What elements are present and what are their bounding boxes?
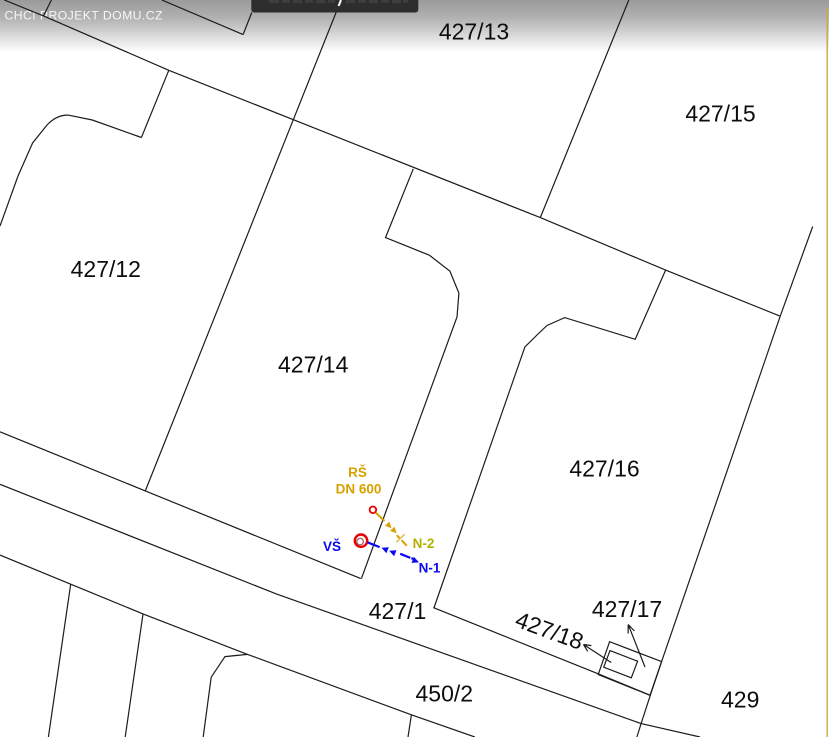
svg-text:427/1: 427/1 [369, 598, 427, 624]
svg-text:VŠ: VŠ [323, 539, 341, 554]
svg-text:427/12: 427/12 [71, 256, 141, 282]
svg-text:DN 600: DN 600 [336, 482, 382, 497]
svg-text:CHCI PROJEKT DOMU.CZ: CHCI PROJEKT DOMU.CZ [5, 9, 164, 23]
svg-text:RŠ: RŠ [348, 465, 367, 480]
svg-text:427/17: 427/17 [592, 596, 662, 622]
svg-text:427/13: 427/13 [439, 19, 509, 45]
svg-text:429: 429 [721, 687, 759, 713]
svg-text:N-1: N-1 [419, 561, 441, 576]
svg-text:N-2: N-2 [413, 536, 435, 551]
svg-text:427/15: 427/15 [685, 101, 755, 127]
svg-text:427/14: 427/14 [278, 352, 349, 378]
svg-text:427/16: 427/16 [569, 456, 639, 482]
svg-text:450/2: 450/2 [416, 681, 474, 707]
